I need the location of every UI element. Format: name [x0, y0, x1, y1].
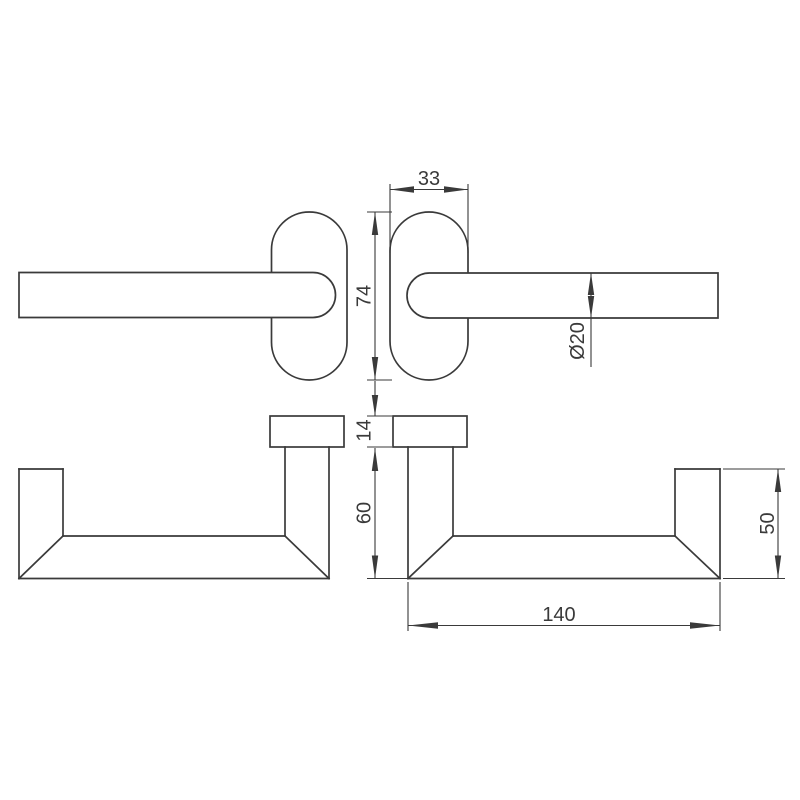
left-miter-edge: [408, 536, 453, 579]
arrowhead: [775, 556, 781, 579]
right-miter-edge: [675, 536, 720, 579]
holder-view-front: [393, 416, 720, 579]
dimension-label: 140: [542, 604, 575, 626]
lever-handle-view-right: [390, 212, 718, 380]
arrowhead: [444, 186, 468, 193]
lever-handle-view-left: [19, 212, 347, 380]
technical-drawing-page: 33 74 Ø20 14 60 50: [0, 0, 800, 800]
mount-plate-outline: [393, 416, 467, 447]
dimension-label: 50: [757, 512, 779, 534]
right-miter-edge: [285, 536, 329, 579]
left-miter-edge: [19, 536, 63, 579]
dim-rosette-height: 74: [354, 212, 393, 380]
arrowhead: [372, 357, 378, 380]
holder-view-perspective: [19, 416, 344, 579]
arrowhead: [372, 212, 378, 235]
dimension-label: 74: [354, 285, 376, 307]
dimension-label: Ø20: [567, 322, 589, 360]
dim-post-height: 50: [723, 469, 785, 579]
dim-drop-height: 60: [354, 448, 408, 579]
arrowhead: [390, 186, 414, 193]
mount-plate-outline: [270, 416, 344, 447]
lever-bar-outline: [19, 273, 336, 318]
lever-bar-outline: [407, 273, 718, 318]
arrowhead: [775, 469, 781, 492]
dimension-label: 60: [354, 502, 376, 524]
arrowhead: [690, 622, 720, 629]
dimension-label: 33: [418, 168, 440, 190]
arrowhead: [372, 556, 378, 579]
arrowhead: [372, 395, 378, 416]
dimension-label: 14: [354, 419, 376, 441]
dim-plate-thickness: 14: [354, 381, 393, 447]
dim-rail-length: 140: [408, 582, 720, 631]
technical-drawing-canvas: 33 74 Ø20 14 60 50: [0, 0, 800, 800]
arrowhead: [408, 622, 438, 629]
arrowhead: [372, 448, 378, 471]
